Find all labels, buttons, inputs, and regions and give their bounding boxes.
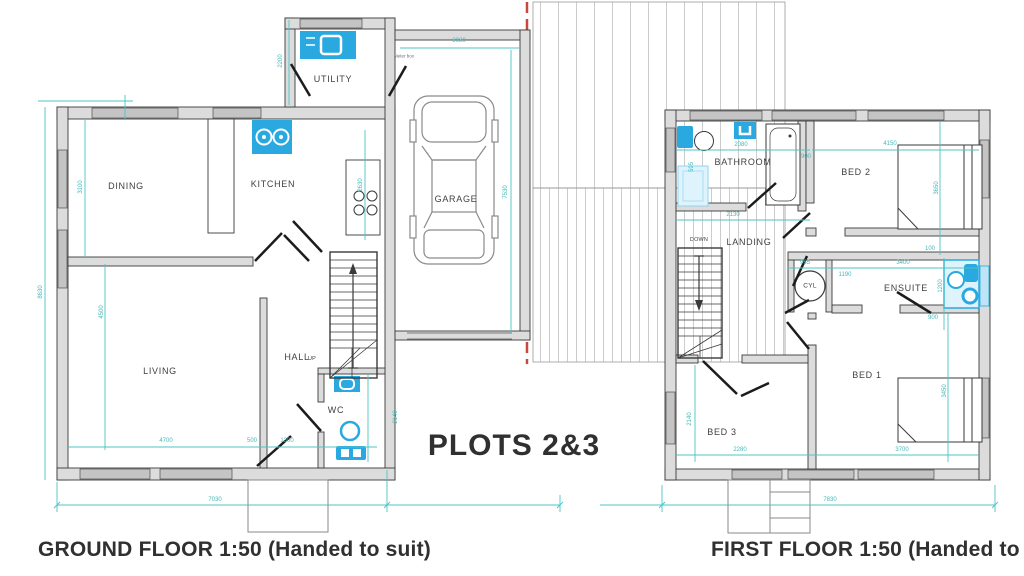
dim-ensuite-inner: 1190 [839,272,852,278]
room-label-kitchen: KITCHEN [251,179,295,189]
utility-sink-icon [300,31,356,59]
kitchen-counter [208,119,380,235]
plan-linework [0,0,1024,576]
dim-ensuite-width: 3400 [896,260,909,266]
dim-bathroom-lower: 2130 [726,212,739,218]
floor-plan-sheet: UTILITY DINING KITCHEN GARAGE LIVING HAL… [0,0,1024,576]
dim-bed1-depth: 3450 [942,384,948,397]
room-label-landing: LANDING [727,237,772,247]
room-label-living: LIVING [143,366,177,376]
room-label-ensuite: ENSUITE [884,283,928,293]
dim-ensuite-offset: 900 [928,315,938,321]
dim-hall-width: 1300 [280,438,293,444]
dim-bed2-gap: 100 [925,246,935,252]
bed1-icon [898,378,982,442]
stairs-up-label: UP [308,356,316,362]
dim-hall-step: 500 [247,438,257,444]
room-label-bed1: BED 1 [852,370,882,380]
dim-kitchen-units: 2630 [358,178,364,191]
dim-garage-depth: 7530 [503,185,509,198]
dim-cyl-width: 965 [800,260,810,266]
oven-icon [252,120,292,154]
ground-floor-stairs [330,252,377,378]
dim-bed1-width: 3700 [895,447,908,453]
dim-garage-width: 3080 [452,38,465,44]
dim-bathroom-width: 2080 [734,142,747,148]
ground-porch [248,480,328,532]
first-floor-caption: FIRST FLOOR 1:50 (Handed to suit) [711,538,1024,562]
ground-floor-caption: GROUND FLOOR 1:50 (Handed to suit) [38,538,431,562]
dim-first-overall-width: 7830 [823,497,836,503]
sheet-title: PLOTS 2&3 [428,429,600,463]
garage-car [410,96,498,264]
room-label-garage: GARAGE [435,194,478,204]
room-label-dining: DINING [108,181,144,191]
dim-bed3-depth: 2140 [687,412,693,425]
dim-living-depth: 4500 [99,305,105,318]
entrance-steps [728,480,810,533]
ensuite-fixtures [944,260,989,308]
dim-wc-depth: 2140 [393,410,399,423]
stairs-down-label: DOWN [690,237,708,243]
room-label-bed3: BED 3 [707,427,737,437]
room-label-hall: HALL [284,352,309,362]
dim-bathroom-left: 595 [689,162,695,172]
ground-floor-windows [58,19,362,479]
dim-overall-depth: 8630 [38,285,44,298]
dim-dining-depth: 3100 [78,180,84,193]
dim-ensuite-depth: 1200 [938,279,944,292]
ground-floor-walls [57,18,530,480]
dim-living-width: 4700 [159,438,172,444]
dim-bed2-depth: 3650 [934,181,940,194]
meter-box-note: Meter box [394,55,414,60]
room-label-bathroom: BATHROOM [715,157,772,167]
room-label-cyl: CYL [803,283,817,290]
dim-utility-depth: 2200 [278,54,284,67]
wc-toilet-icon [336,422,366,460]
dim-ground-overall-width: 7030 [208,497,221,503]
dim-bed2-width: 4150 [883,141,896,147]
room-label-utility: UTILITY [314,74,352,84]
dim-bed3-width: 2280 [733,447,746,453]
room-label-wc: WC [328,405,344,415]
dim-bathroom-offset: 900 [801,154,811,160]
room-label-bed2: BED 2 [841,167,871,177]
roof-hatch-area [533,2,785,362]
